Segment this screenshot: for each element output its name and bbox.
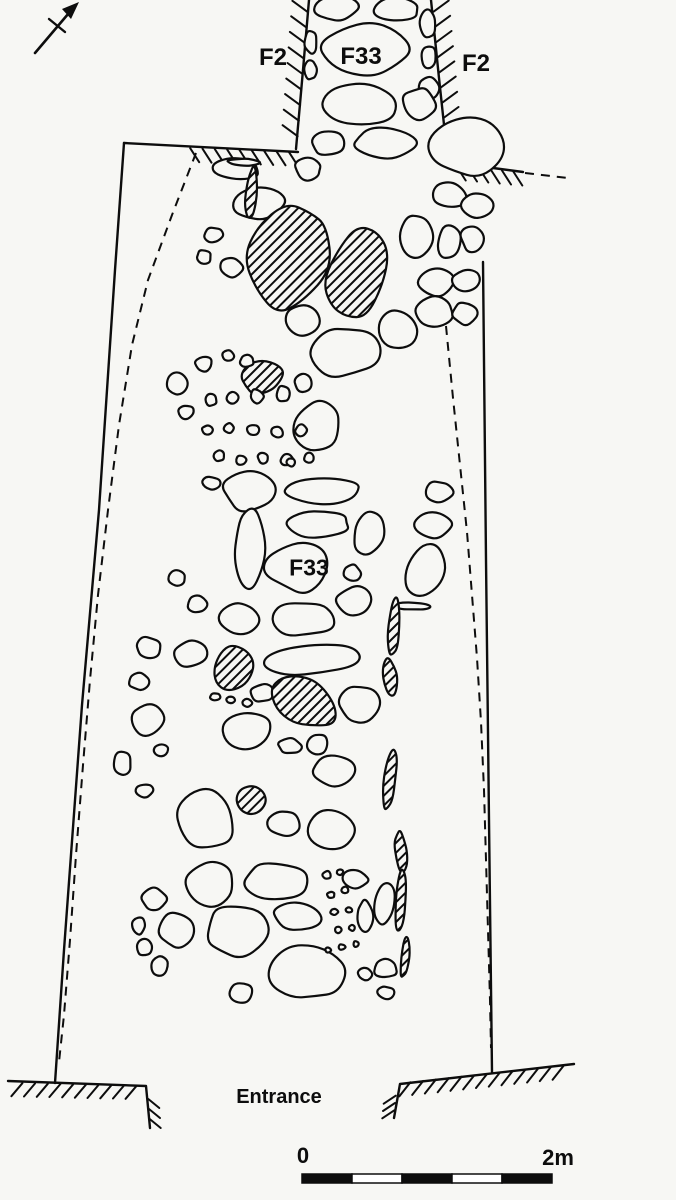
scale-end-label: 2m xyxy=(542,1147,574,1169)
north-arrow-icon xyxy=(35,2,79,53)
feature-label-f33-top: F33 xyxy=(340,45,381,69)
scale-zero-label: 0 xyxy=(297,1145,309,1167)
entrance-label: Entrance xyxy=(236,1087,322,1107)
feature-label-f33-mid: F33 xyxy=(289,557,329,580)
site-plan-page: F2 F33 F2 F33 Entrance 0 2m xyxy=(0,0,676,1200)
feature-label-f2-right: F2 xyxy=(462,52,490,76)
site-plan-drawing xyxy=(0,0,676,1200)
feature-label-f2-left: F2 xyxy=(259,46,287,70)
stones xyxy=(114,0,504,1003)
scale-bar xyxy=(302,1174,552,1183)
